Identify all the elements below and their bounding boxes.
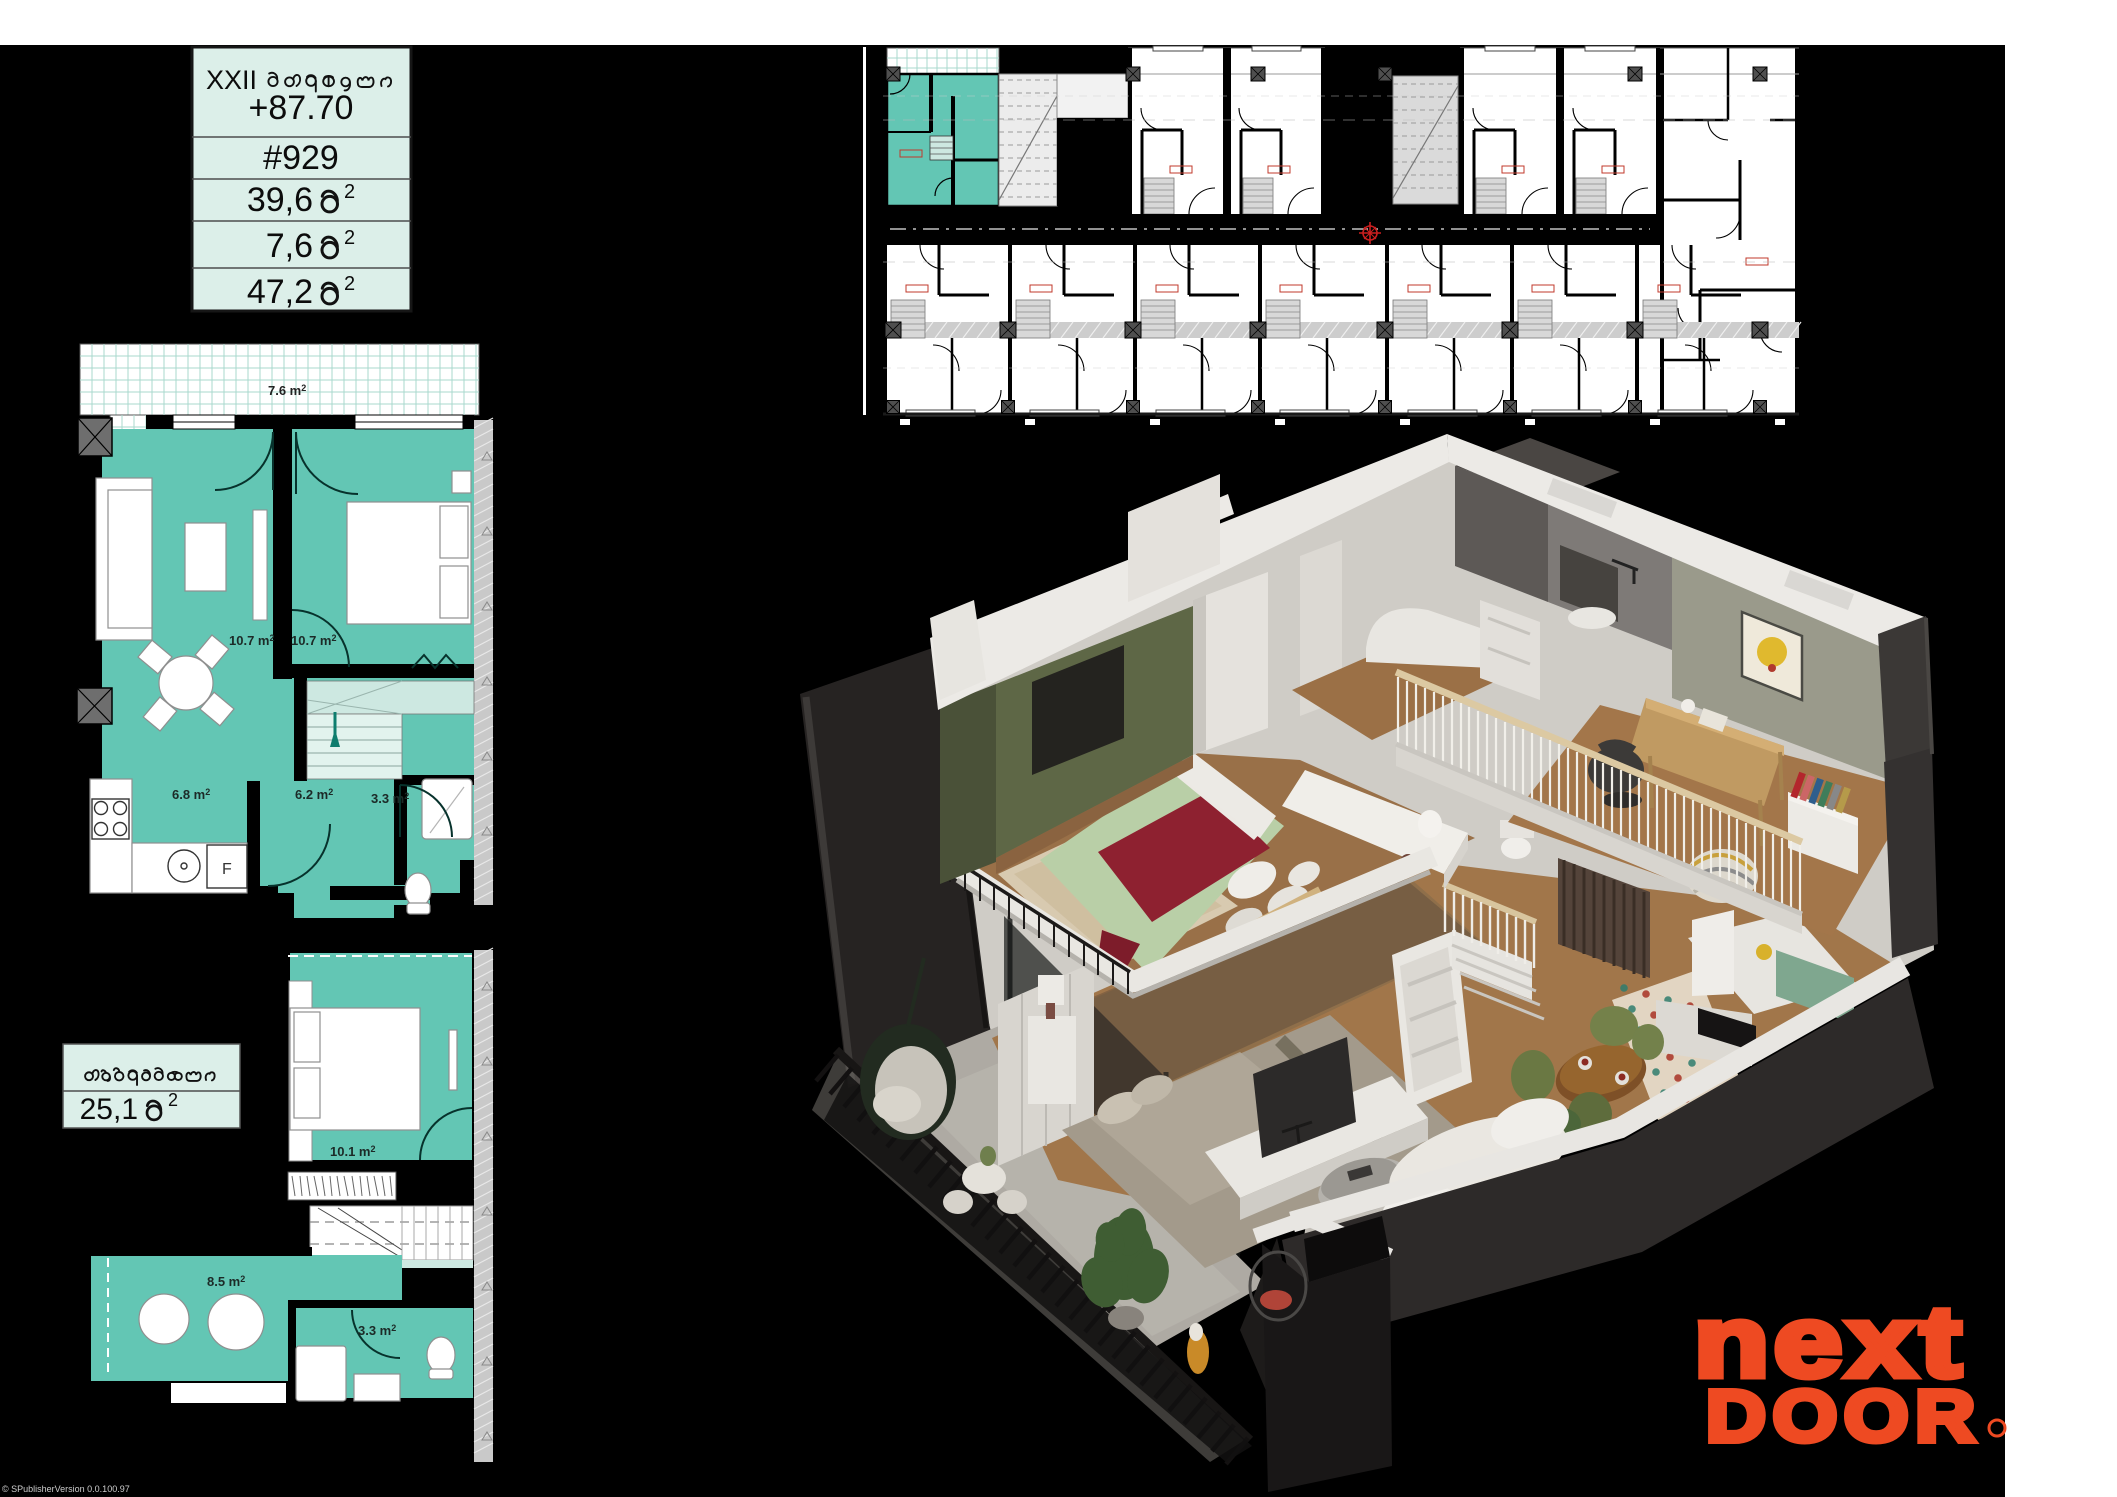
svg-text:7.6 m2: 7.6 m2 <box>268 383 306 398</box>
svg-text:+87.70: +87.70 <box>249 89 354 127</box>
svg-text:10.7 m2: 10.7 m2 <box>229 633 275 648</box>
svg-text:6.2 m2: 6.2 m2 <box>295 787 333 802</box>
svg-text:39,6: 39,6 <box>247 181 313 219</box>
svg-text:6.8 m2: 6.8 m2 <box>172 787 210 802</box>
svg-text:F: F <box>222 861 232 878</box>
svg-text:25,1: 25,1 <box>80 1093 138 1126</box>
svg-text:7,6: 7,6 <box>266 227 313 265</box>
svg-text:8.5 m2: 8.5 m2 <box>207 1274 245 1289</box>
svg-text:DOOR: DOOR <box>1706 1377 1982 1457</box>
svg-text:10.7 m2: 10.7 m2 <box>291 633 337 648</box>
svg-text:2: 2 <box>344 181 355 203</box>
svg-text:#929: #929 <box>263 139 339 177</box>
svg-text:3.3 m2: 3.3 m2 <box>358 1323 396 1338</box>
svg-text:2: 2 <box>344 273 355 295</box>
svg-text:© SPublisherVersion 0.0.100.97: © SPublisherVersion 0.0.100.97 <box>2 1484 130 1494</box>
svg-text:3.3 m2: 3.3 m2 <box>371 791 409 806</box>
svg-text:47,2: 47,2 <box>247 273 313 311</box>
svg-text:2: 2 <box>344 227 355 249</box>
svg-text:10.1 m2: 10.1 m2 <box>330 1144 376 1159</box>
svg-text:2: 2 <box>168 1090 178 1110</box>
